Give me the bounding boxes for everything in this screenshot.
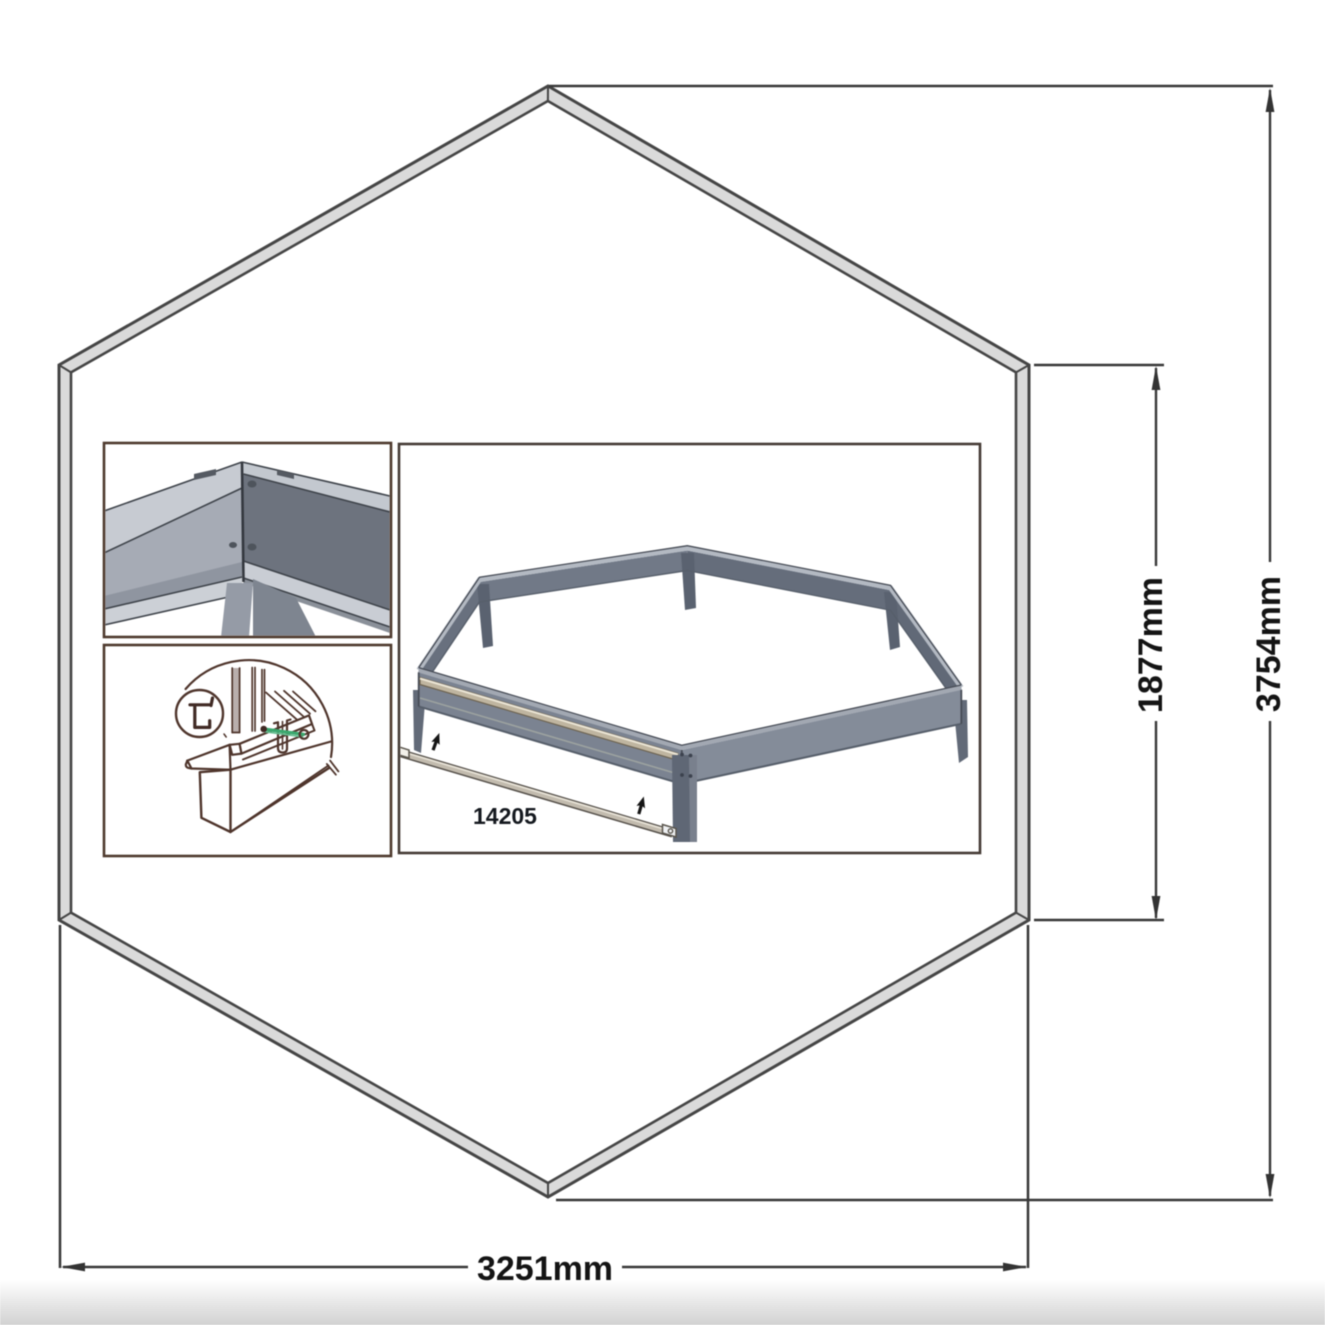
svg-text:14205: 14205 xyxy=(473,803,537,829)
svg-text:3754mm: 3754mm xyxy=(1250,576,1288,712)
svg-text:3251mm: 3251mm xyxy=(477,1250,613,1288)
svg-text:1877mm: 1877mm xyxy=(1132,577,1170,713)
